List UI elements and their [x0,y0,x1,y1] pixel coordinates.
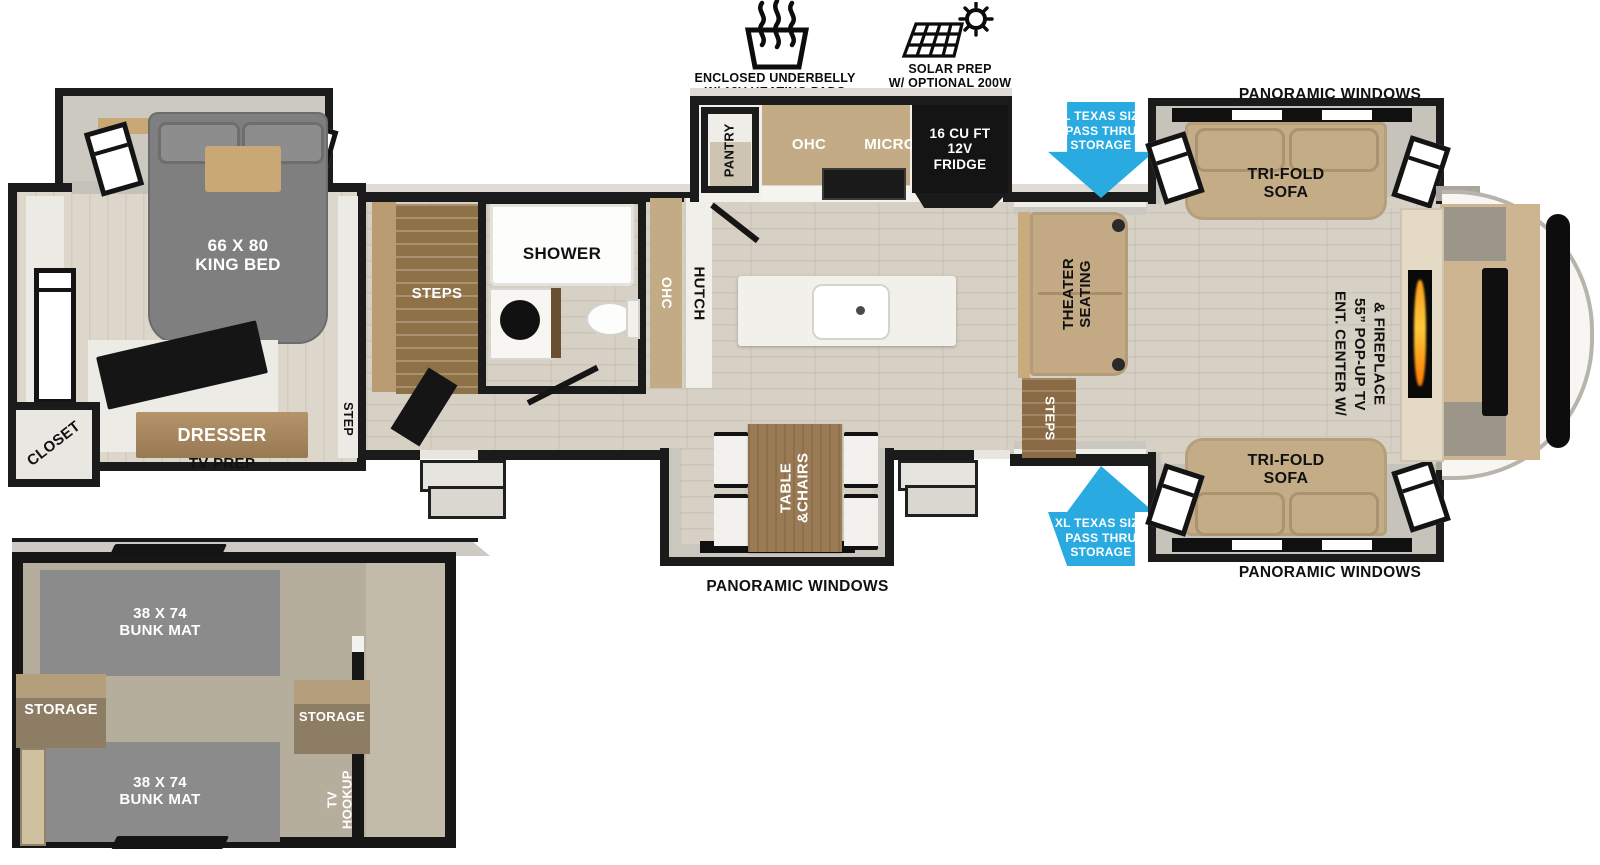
bedroom-window-icon [34,268,76,404]
panoramic-windows-bottom-center-label: PANORAMIC WINDOWS [690,578,905,596]
shower-label: SHOWER [490,244,634,263]
sofa-cushion [1289,492,1379,536]
tv-prep-label: TV PREP [136,456,308,473]
dining-chair [844,494,878,550]
stairs-landing [372,202,396,392]
solar-prep-icon [900,2,1000,62]
dining-chair [714,432,748,488]
window-pane [1322,540,1372,550]
heating-pads-icon [728,0,823,70]
range-cooktop-icon [822,168,906,200]
entry-door-threshold [420,450,478,459]
dining-chair [844,432,878,488]
roof-vent-icon [111,836,229,849]
entry-steps-label: STEPS [1022,382,1076,454]
slideout-window-band [1172,108,1412,122]
rv-floorplan: ENCLOSED UNDERBELLY W/ 12V HEATING PADS … [0,0,1600,865]
stairs-label: STEPS [396,286,478,303]
theater-seating-label: THEATER SEATING [1028,230,1128,358]
ohc-bath-label: OHC [650,198,682,388]
vanity-side-panel [551,288,561,358]
wall-bottom [894,450,974,460]
storage-right-label: STORAGE [294,710,370,725]
slideout-window-band [1172,538,1412,552]
refrigerator: 16 CU FT 12V FRIDGE [912,105,1008,193]
bunk-room-right-area [366,563,445,837]
storage-left-label: STORAGE [16,702,106,718]
pass-thru-arrow-bottom: XL TEXAS SIZE PASS THRU STORAGE [1048,466,1154,566]
front-cap-window [1546,214,1570,448]
sink-drain-icon [856,306,865,315]
bunk-wall-trim [352,636,364,652]
flame-icon [1414,280,1426,386]
wall-bottom [366,450,420,460]
closet: CLOSET [8,402,100,487]
table-chairs-label: TABLE &CHAIRS [748,424,842,552]
bunk-roof-line [12,538,478,542]
cupholder-icon [1112,358,1125,371]
bunk-mat-top-label: 38 X 74 BUNK MAT [119,606,200,640]
dresser: DRESSER [136,412,308,458]
wall-top-passthru [1010,192,1150,202]
entry-steps-exterior [905,485,978,517]
ohc-kitchen-label: OHC [776,137,842,154]
toilet-tank [626,299,640,339]
window-pane [1232,540,1282,550]
fireplace-icon [1408,270,1432,398]
tri-fold-sofa-top-label: TRI-FOLD SOFA [1212,166,1360,202]
panoramic-windows-bottom-right-label: PANORAMIC WINDOWS [1205,564,1455,582]
island-sink-icon [812,284,890,340]
bunk-storage-left: STORAGE [16,674,106,748]
window-pane [1322,110,1372,120]
pantry-label: PANTRY [701,107,759,193]
pass-thru-top-label: XL TEXAS SIZE PASS THRU STORAGE [1048,109,1154,153]
tv-hookup-label: TV HOOKUP [320,756,360,844]
cabinet-top [294,680,370,704]
bunk-ladder [20,748,46,846]
closet-label: CLOSET [24,419,84,471]
entry-steps-exterior [428,486,506,519]
bed-bench [205,146,281,192]
pop-up-tv-icon [1482,268,1508,416]
roof-vent-icon [109,544,227,557]
pass-thru-bottom-label: XL TEXAS SIZE PASS THRU STORAGE [1048,516,1154,560]
king-bed-label: 66 X 80 KING BED [150,236,326,274]
sofa-cushion [1195,492,1285,536]
fridge-label: 16 CU FT 12V FRIDGE [930,126,991,172]
cabinet-corner [1444,207,1506,261]
entry-door-threshold [974,450,1010,459]
cabinet-top [16,674,106,698]
dresser-label: DRESSER [177,425,266,445]
ent-center-label: ENT. CENTER W/ 55” POP-UP TV & FIREPLACE [1322,242,1396,466]
window-pane [1232,110,1282,120]
hutch-label: HUTCH [682,198,714,388]
dining-chair [714,494,748,550]
fridge-counter [915,193,1007,208]
step-label: STEP [330,388,366,450]
bunk-mat-top: 38 X 74 BUNK MAT [40,570,280,676]
bunk-mat-bottom: 38 X 74 BUNK MAT [40,742,280,842]
bunk-mat-bottom-label: 38 X 74 BUNK MAT [119,775,200,809]
bunk-storage-right: STORAGE [294,680,370,754]
wall-bottom [478,450,662,460]
bath-sink-icon [500,300,540,340]
